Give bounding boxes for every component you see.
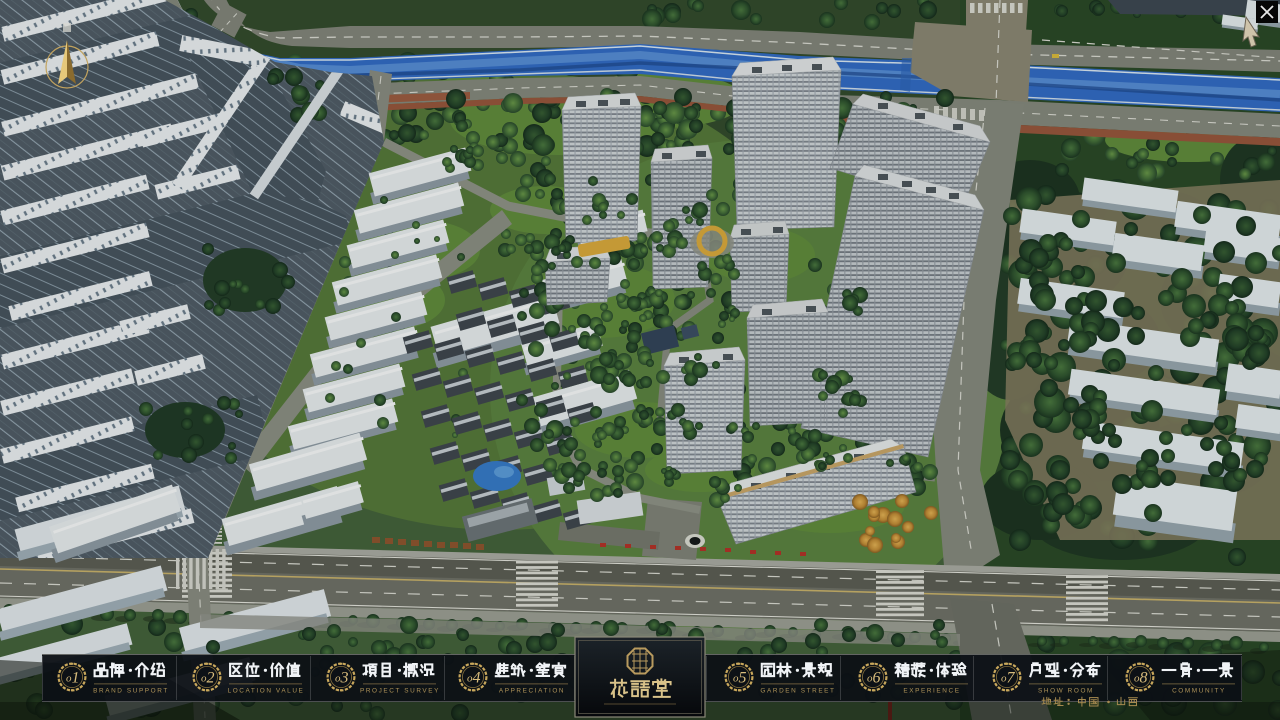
svg-text:5: 5 bbox=[739, 670, 747, 687]
svg-text:2: 2 bbox=[207, 670, 215, 687]
svg-text:GARDEN STREET: GARDEN STREET bbox=[760, 688, 835, 695]
svg-text:6: 6 bbox=[873, 670, 881, 687]
svg-text:APPRECIATION: APPRECIATION bbox=[499, 688, 565, 695]
svg-text:EXPERIENCE: EXPERIENCE bbox=[903, 688, 960, 695]
svg-text:7: 7 bbox=[1007, 670, 1016, 687]
svg-text:LOCATION VALUE: LOCATION VALUE bbox=[228, 688, 305, 695]
svg-text:PROJECT SURVEY: PROJECT SURVEY bbox=[360, 688, 440, 695]
svg-text:8: 8 bbox=[1140, 670, 1148, 687]
svg-text:3: 3 bbox=[340, 670, 349, 687]
svg-text:COMMUNITY: COMMUNITY bbox=[1172, 688, 1226, 695]
svg-text:1: 1 bbox=[72, 670, 80, 687]
svg-text:BRAND SUPPORT: BRAND SUPPORT bbox=[93, 688, 169, 695]
svg-text:SHOW ROOM: SHOW ROOM bbox=[1038, 688, 1094, 695]
svg-text:4: 4 bbox=[473, 670, 481, 687]
